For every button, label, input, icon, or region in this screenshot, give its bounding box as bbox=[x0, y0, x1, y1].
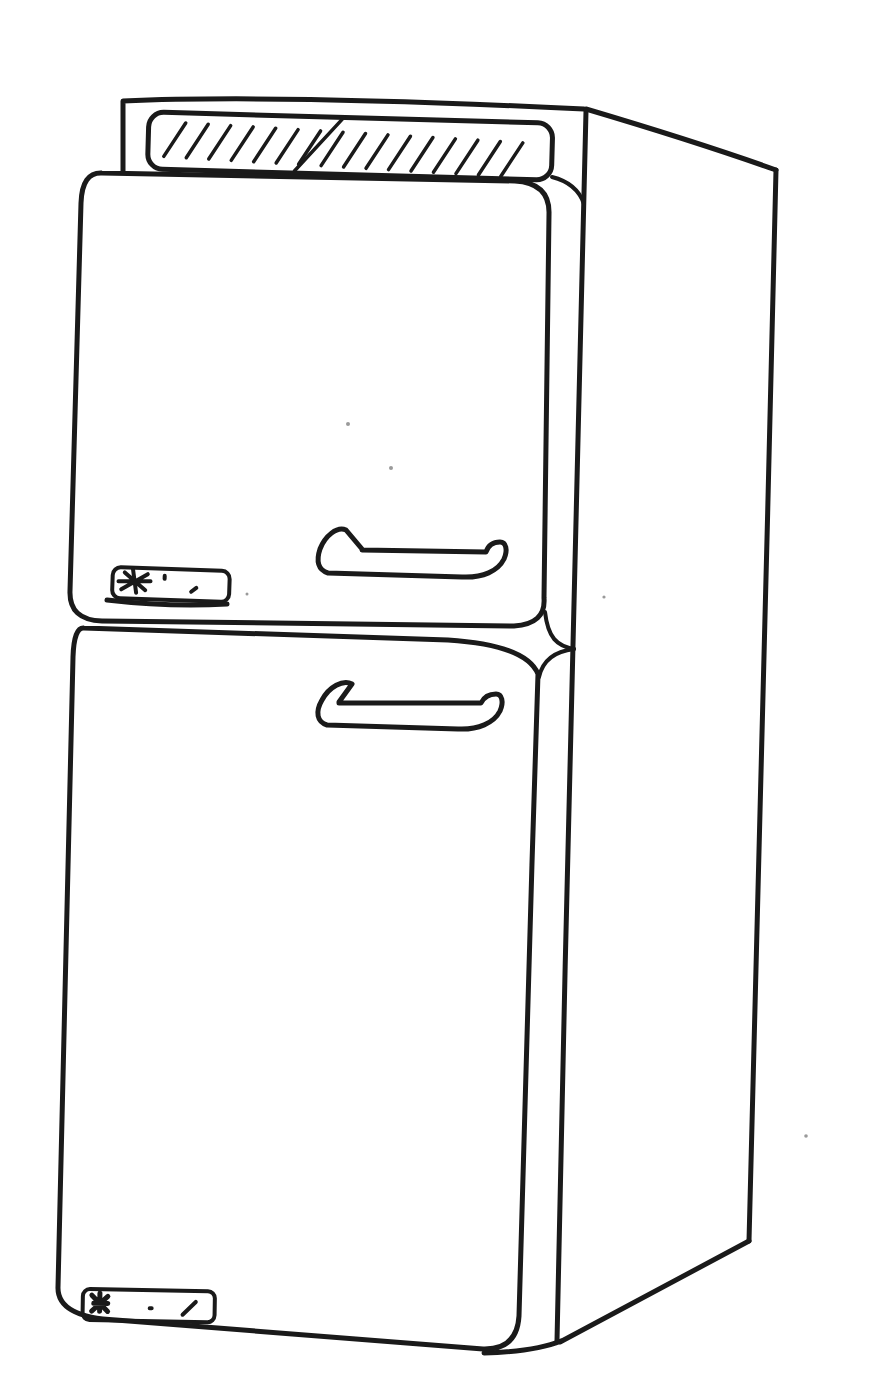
cabinet-bottom-edge bbox=[560, 1241, 749, 1342]
cabinet-right-edge bbox=[749, 170, 776, 1241]
drawing-canvas bbox=[0, 0, 892, 1387]
refrigerator-line-drawing bbox=[0, 0, 892, 1387]
back-panel-outline bbox=[123, 99, 584, 177]
door-gap-junction-upper bbox=[545, 612, 574, 649]
top-vent-grille bbox=[147, 112, 552, 180]
grille-frame bbox=[147, 112, 552, 180]
cabinet-top-edge bbox=[586, 109, 776, 170]
cabinet-front-corner bbox=[557, 111, 586, 1341]
refrigerator-logo-scribble bbox=[92, 1293, 108, 1311]
refrigerator-door-outline bbox=[58, 628, 538, 1349]
back-panel-ledge bbox=[552, 177, 584, 204]
freezer-door bbox=[70, 173, 574, 649]
refrigerator-door bbox=[58, 628, 574, 1349]
door-gap-junction-lower bbox=[539, 649, 574, 677]
